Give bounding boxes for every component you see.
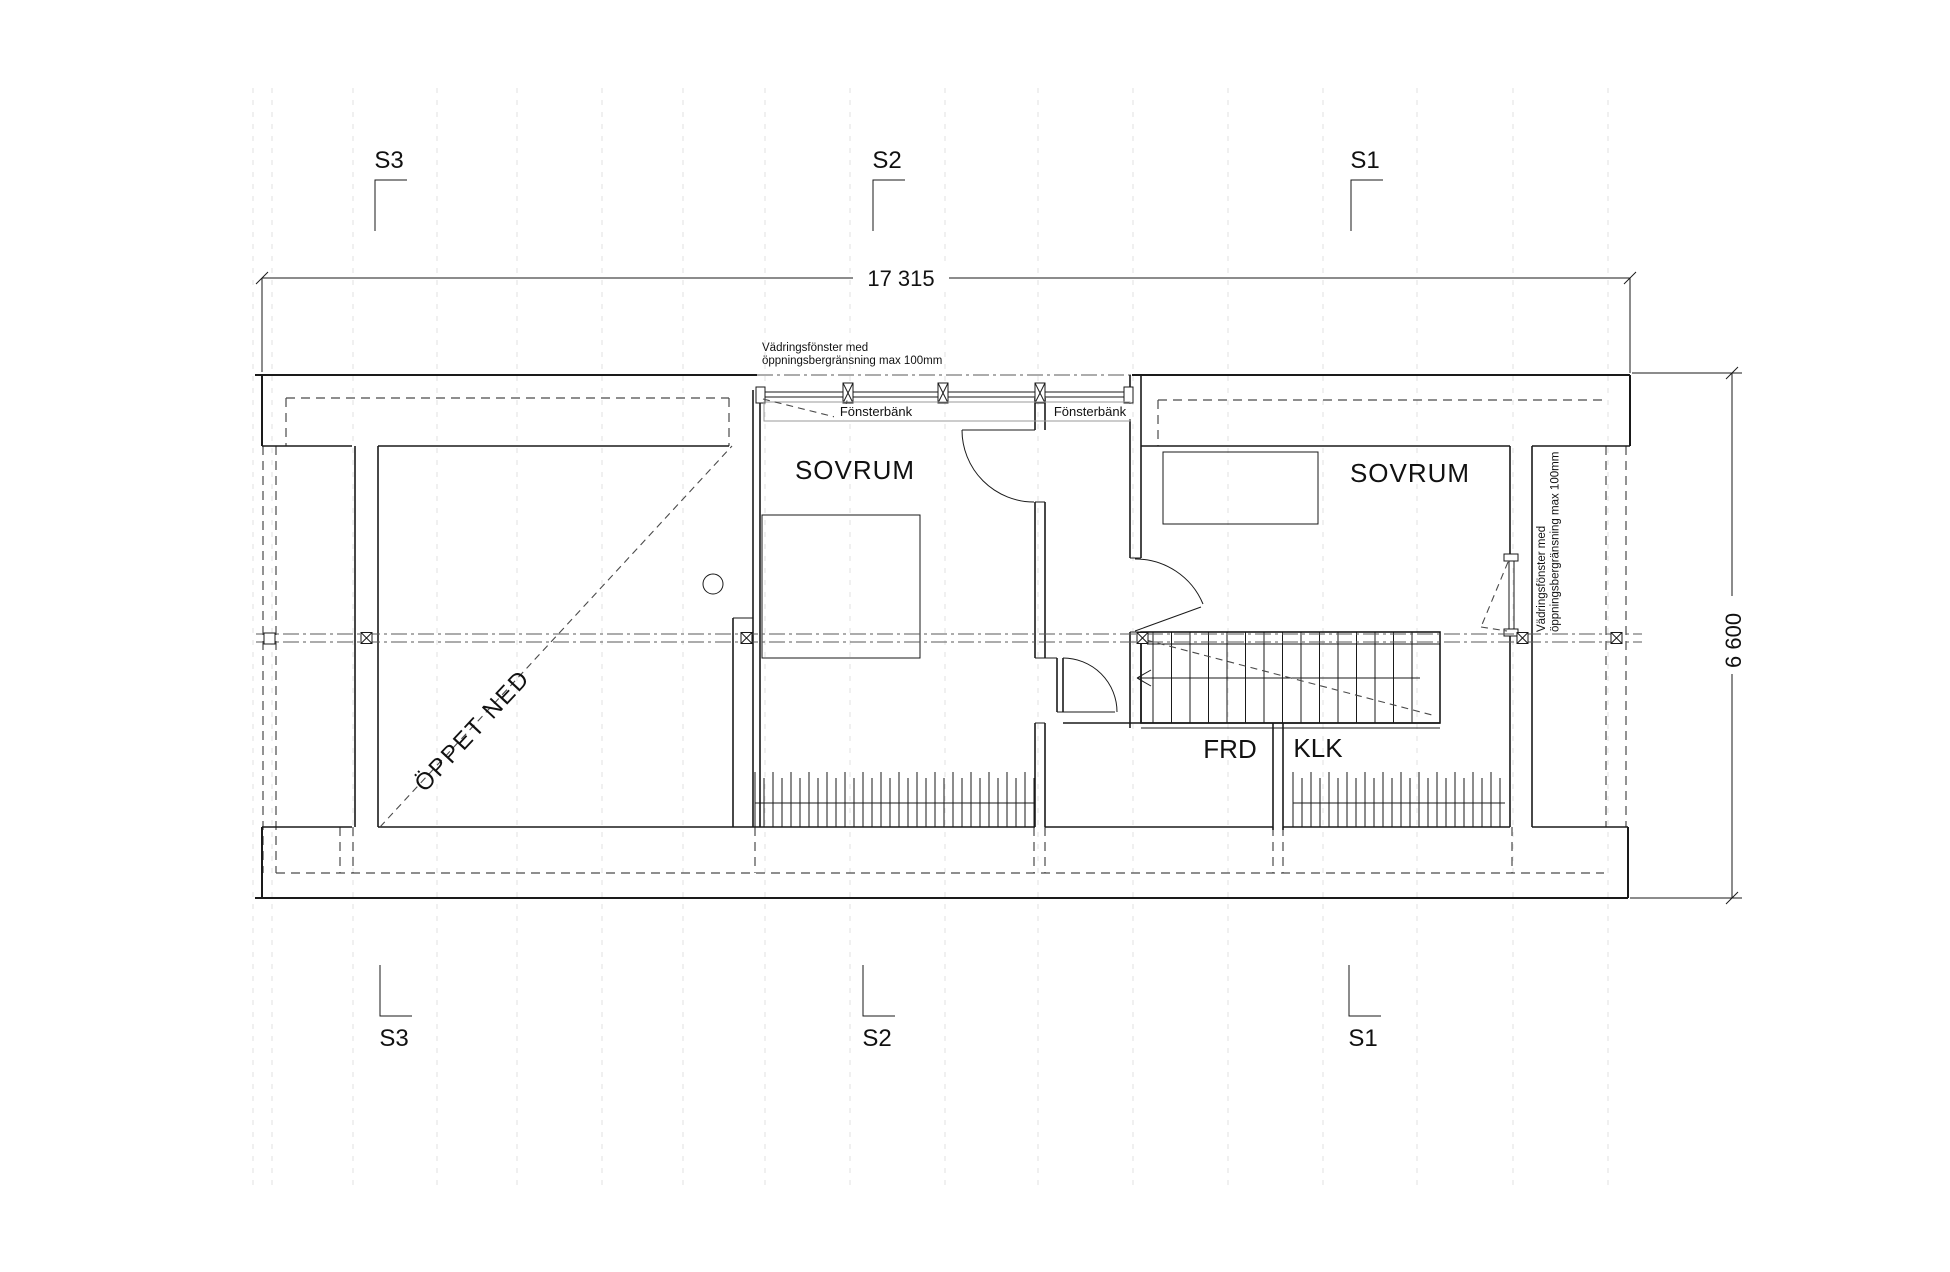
floor-plan-canvas: Fönsterbänk Fönsterbänk [0,0,1950,1272]
svg-text:S3: S3 [379,1025,408,1052]
dimension-depth-label: 6 600 [1721,613,1746,668]
dimension-width-label: 17 315 [867,266,934,291]
doors [962,430,1203,712]
bed-right-bedroom [1163,452,1318,524]
door-middle-bedroom [962,430,1035,502]
section-marker-s3-top: S3 [374,147,407,231]
svg-text:S3: S3 [374,147,403,174]
section-marker-s1-bottom: S1 [1348,965,1381,1052]
dimensions: 17 315 6 600 [256,264,1746,904]
grid-node-square-icon [264,633,275,644]
svg-text:S1: S1 [1348,1025,1377,1052]
room-label-klk: KLK [1293,733,1343,763]
room-label-sovrum-right: SOVRUM [1350,458,1470,488]
section-marker-s3-bottom: S3 [379,965,412,1052]
bed-middle-bedroom [762,515,920,658]
svg-text:S2: S2 [872,147,901,174]
vent-window-note-right: Vädringsfönster med öppningsbergränsning… [1536,452,1562,632]
svg-text:S2: S2 [862,1025,891,1052]
window-sill-label: Fönsterbänk [840,404,913,419]
door-right-bedroom [1135,559,1203,631]
room-label-frd: FRD [1203,734,1256,764]
dimension-width: 17 315 [256,264,1636,373]
section-marker-s2-bottom: S2 [862,965,895,1052]
window-right-gable [1481,554,1518,636]
section-marker-s1-top: S1 [1350,147,1383,231]
svg-text:S1: S1 [1350,147,1379,174]
walls [255,375,1630,898]
wardrobe-middle-bedroom [755,772,1035,827]
room-labels: SOVRUM SOVRUM ÖPPET NED FRD KLK [409,455,1470,797]
window-mullion-x-icon [843,383,1045,403]
room-label-sovrum-mid: SOVRUM [795,455,915,485]
vent-pipe-circle-icon [703,574,723,594]
room-label-oppet-ned: ÖPPET NED [409,665,535,798]
grid-lines [253,88,1608,1190]
section-marker-s2-top: S2 [872,147,905,231]
wardrobe-klk [1293,772,1505,827]
door-frd [1063,658,1117,712]
dimension-depth: 6 600 [1630,367,1746,904]
vent-window-note-top: Vädringsfönster med öppningsbergränsning… [762,342,942,367]
window-sill-label: Fönsterbänk [1054,404,1127,419]
floor-plan-page: Fönsterbänk Fönsterbänk [0,0,1950,1272]
centerlines [256,633,1642,645]
stairs [1137,632,1440,723]
